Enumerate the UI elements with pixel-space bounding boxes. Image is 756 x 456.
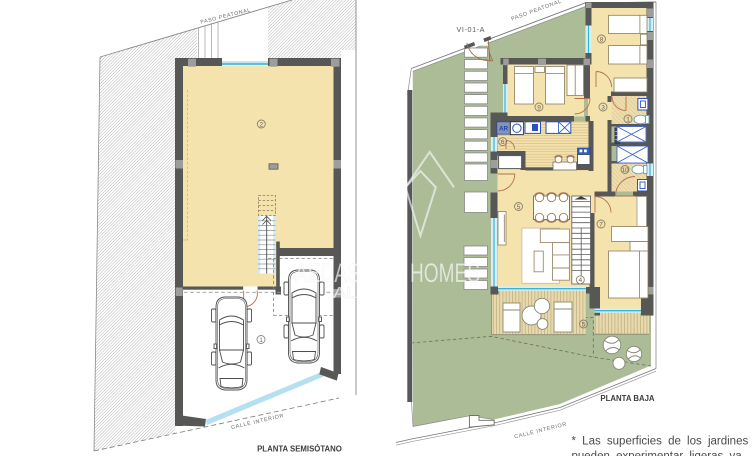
svg-text:AL: AL: [333, 285, 357, 302]
svg-text:9: 9: [537, 104, 541, 111]
svg-text:8: 8: [600, 36, 604, 43]
svg-text:PLANTA SEMISÓTANO: PLANTA SEMISÓTANO: [257, 445, 342, 454]
svg-text:pueden experimentar ligeras va: pueden experimentar ligeras va-: [572, 451, 746, 456]
svg-text:* Las superficies de los jardi: * Las superficies de los jardines: [572, 436, 749, 448]
svg-text:7: 7: [599, 221, 603, 228]
svg-text:4: 4: [578, 277, 582, 284]
svg-text:10: 10: [621, 167, 629, 174]
svg-text:6: 6: [501, 139, 505, 146]
svg-text:PLANTA BAJA: PLANTA BAJA: [600, 394, 655, 403]
svg-text:AR: AR: [499, 126, 509, 133]
svg-text:1: 1: [259, 337, 263, 344]
svg-text:1: 1: [626, 116, 630, 123]
svg-text:HOMES: HOMES: [410, 258, 480, 288]
svg-text:3: 3: [601, 104, 605, 111]
svg-text:2: 2: [259, 121, 263, 128]
svg-text:5: 5: [582, 321, 586, 328]
svg-text:VI-01-A: VI-01-A: [457, 25, 486, 34]
svg-text:AEDAS: AEDAS: [295, 258, 360, 288]
svg-text:5: 5: [517, 204, 521, 211]
